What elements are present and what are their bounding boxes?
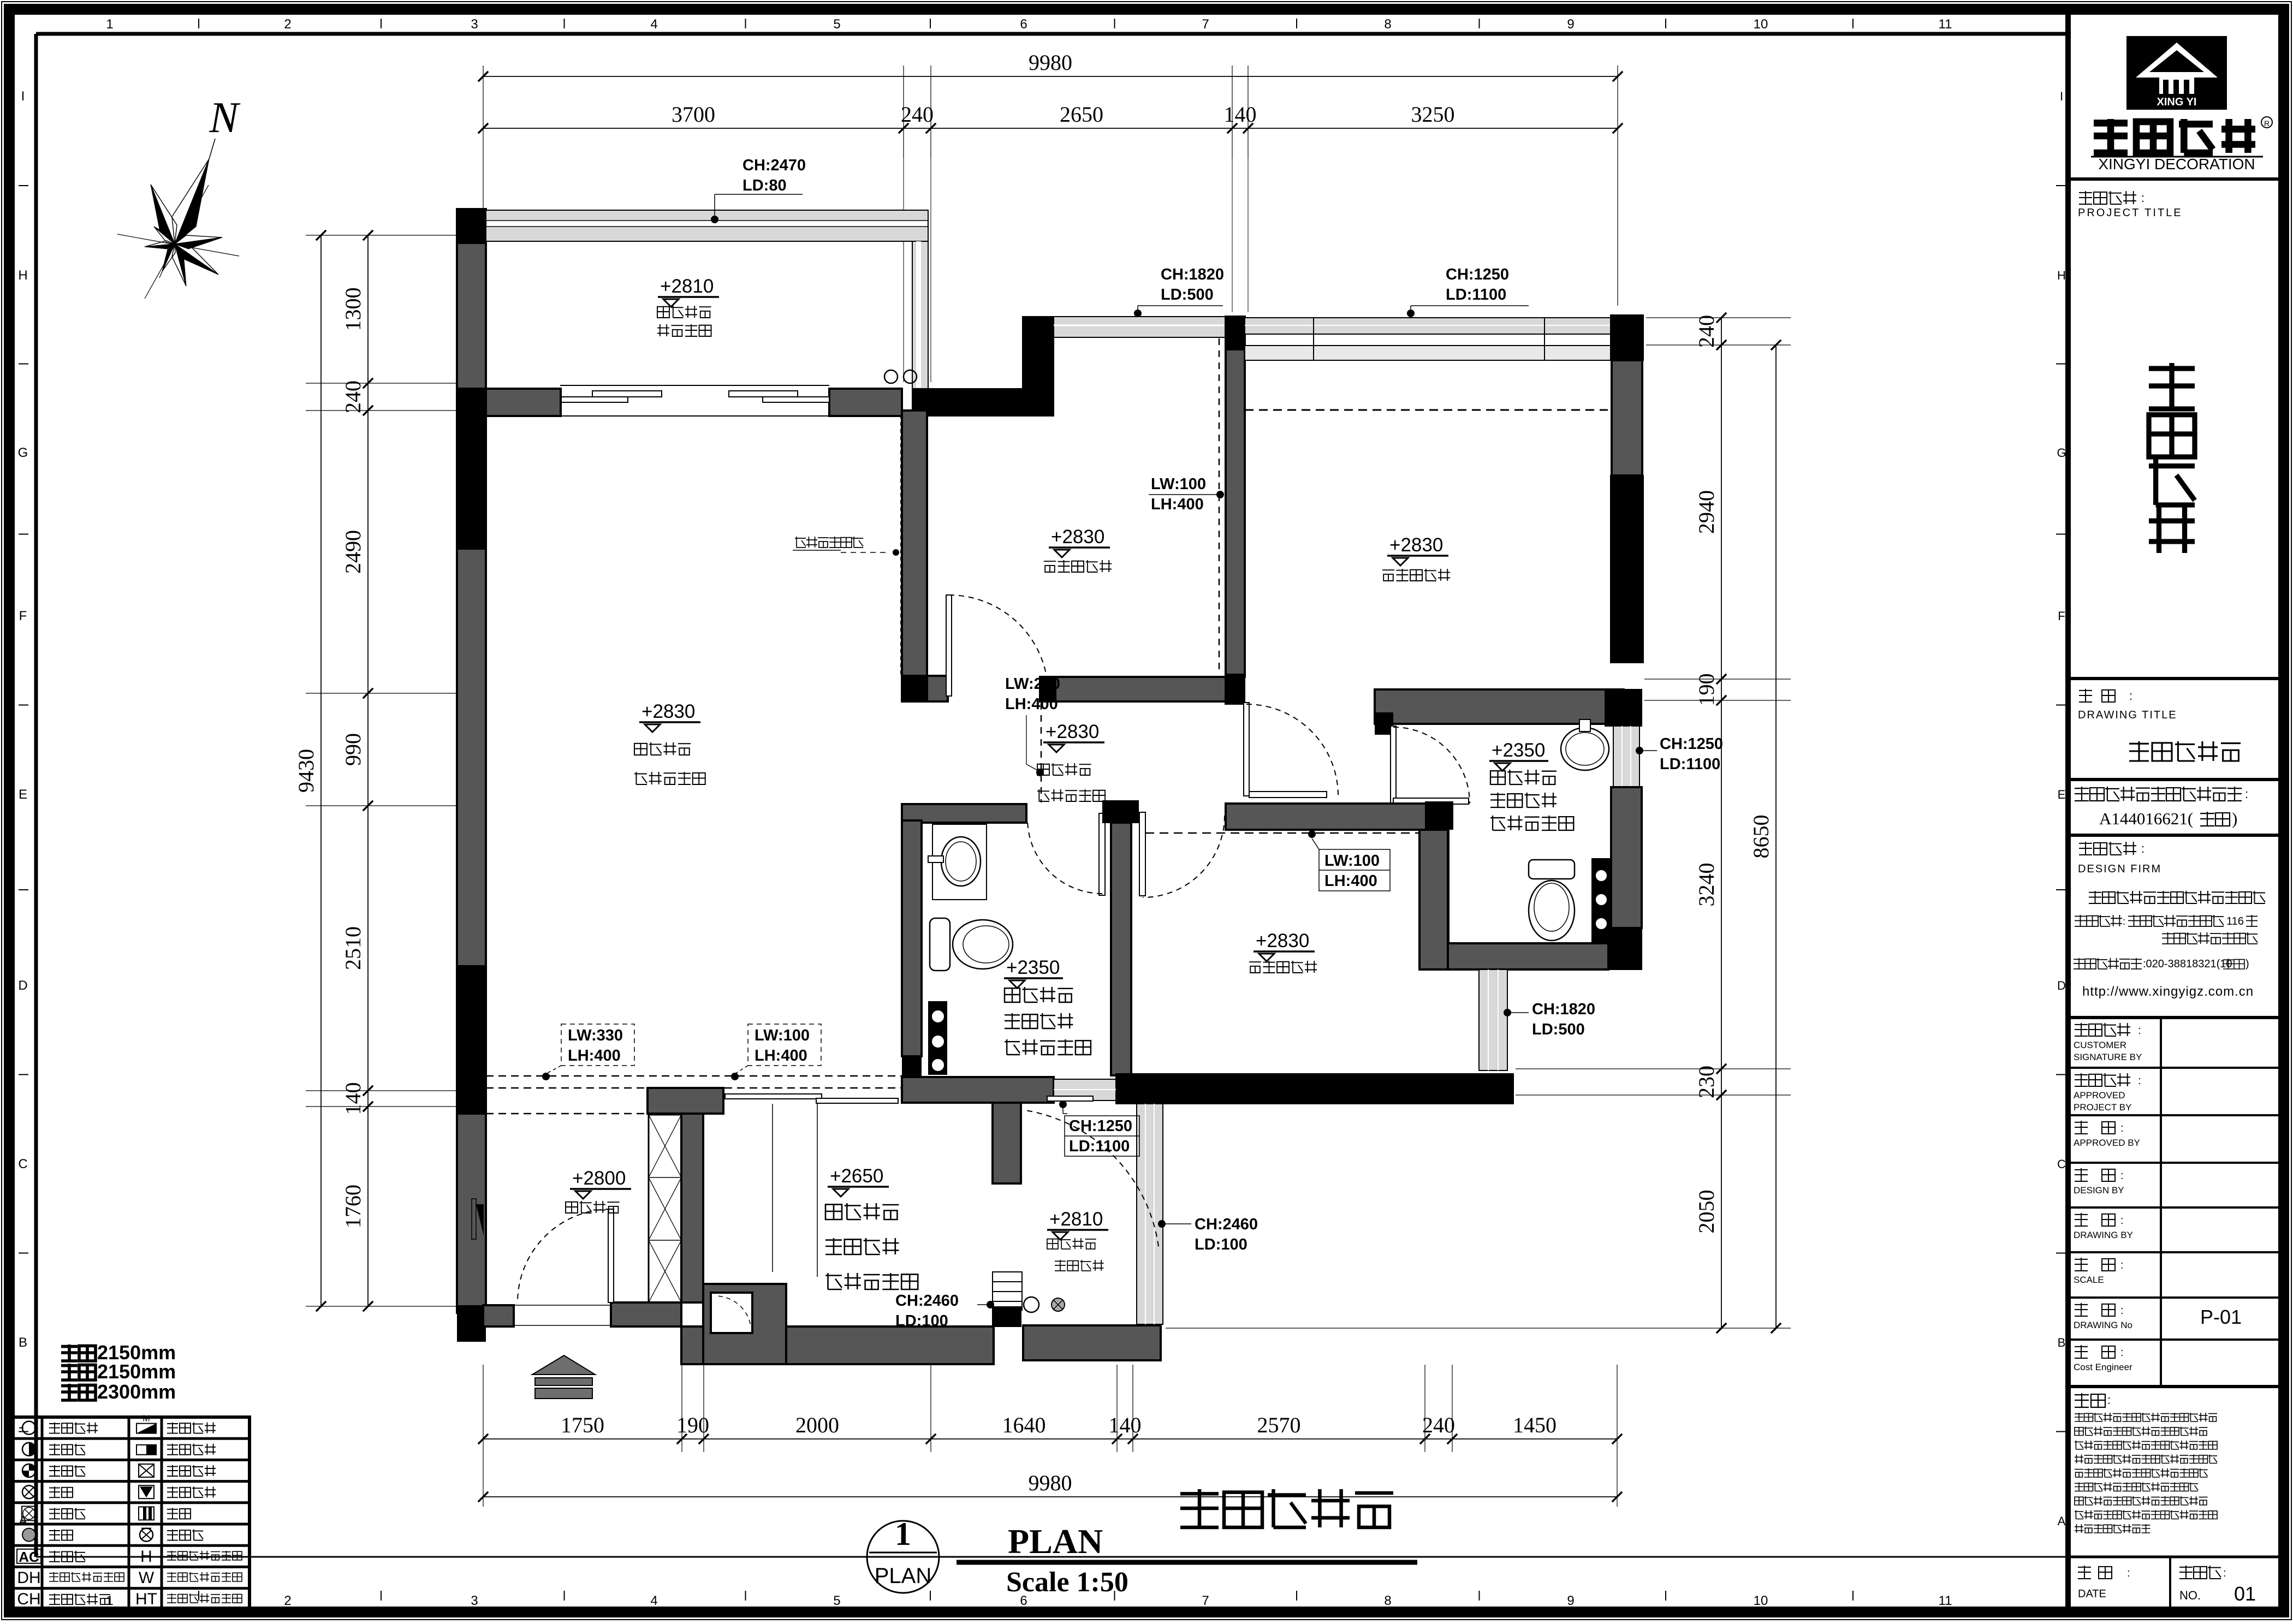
svg-text:+2810: +2810 (660, 276, 714, 297)
svg-text:11: 11 (1939, 17, 1952, 32)
svg-text:LW:330: LW:330 (568, 1027, 623, 1044)
svg-text::: : (2120, 1259, 2124, 1271)
svg-text::: : (2120, 1170, 2124, 1182)
svg-text:DESIGN FIRM: DESIGN FIRM (2078, 863, 2161, 875)
svg-text:9430: 9430 (294, 749, 318, 793)
svg-text:1: 1 (895, 1516, 911, 1552)
svg-text:http://www.xingyigz.com.cn: http://www.xingyigz.com.cn (2082, 984, 2254, 999)
svg-text:7: 7 (1202, 1593, 1209, 1608)
svg-text:HT: HT (135, 1590, 157, 1608)
svg-text:3240: 3240 (1694, 863, 1719, 907)
svg-text:2570: 2570 (1257, 1413, 1301, 1437)
svg-text:10: 10 (1754, 17, 1768, 32)
svg-text:10: 10 (1754, 1593, 1768, 1608)
svg-text:4: 4 (650, 17, 657, 32)
svg-text:LH:400: LH:400 (1005, 695, 1058, 713)
svg-text:H: H (18, 268, 27, 283)
svg-text:1750: 1750 (561, 1413, 604, 1437)
svg-text::: : (2123, 916, 2125, 927)
svg-text:XING YI: XING YI (2157, 96, 2197, 108)
svg-text:PLAN: PLAN (1008, 1522, 1103, 1561)
svg-text:190: 190 (1694, 674, 1719, 706)
svg-text:PROJECT BY: PROJECT BY (2074, 1102, 2131, 1113)
svg-text:LH:400: LH:400 (1151, 496, 1204, 513)
svg-text:LH:400: LH:400 (755, 1047, 807, 1064)
svg-text:H: H (2057, 269, 2066, 282)
svg-text:4: 4 (650, 1593, 657, 1608)
svg-text::: : (2127, 1567, 2130, 1579)
svg-text::: : (2138, 1025, 2141, 1037)
svg-text:LW:100: LW:100 (1324, 852, 1380, 870)
svg-text:190: 190 (676, 1413, 709, 1437)
svg-text:3: 3 (471, 1593, 478, 1608)
svg-text:DRAWING TITLE: DRAWING TITLE (2078, 709, 2177, 721)
svg-text:E: E (2058, 788, 2066, 801)
svg-text:B: B (19, 1335, 27, 1350)
svg-text:5: 5 (833, 17, 840, 32)
svg-text:140: 140 (1109, 1413, 1142, 1437)
svg-text:2: 2 (284, 17, 291, 32)
svg-text:LD:1100: LD:1100 (1069, 1138, 1130, 1155)
svg-text:9980: 9980 (1029, 50, 1072, 75)
svg-text:C: C (2057, 1157, 2066, 1171)
svg-text:I: I (21, 89, 25, 104)
svg-text:2650: 2650 (1060, 102, 1103, 127)
svg-text:R: R (2264, 119, 2270, 128)
svg-text:): ) (2232, 809, 2237, 828)
svg-text:9: 9 (1567, 17, 1574, 32)
svg-text:SCALE: SCALE (2074, 1275, 2104, 1285)
svg-text:LD:500: LD:500 (1161, 286, 1214, 304)
svg-text:990: 990 (341, 733, 365, 766)
svg-text:+2830: +2830 (1045, 721, 1099, 742)
svg-text:1: 1 (106, 1593, 113, 1608)
svg-text::: : (2141, 191, 2145, 205)
svg-text:CH:1250: CH:1250 (1446, 266, 1509, 283)
svg-text:DH: DH (17, 1569, 40, 1587)
svg-text:CH:1250: CH:1250 (1660, 735, 1723, 753)
svg-text:9980: 9980 (1029, 1471, 1072, 1495)
svg-text:CUSTOMER: CUSTOMER (2074, 1040, 2126, 1050)
svg-text:240: 240 (341, 380, 365, 413)
svg-text:N: N (209, 94, 241, 142)
svg-text:W: W (139, 1569, 155, 1587)
svg-text:9: 9 (1567, 1593, 1574, 1608)
svg-text:XINGYI DECORATION: XINGYI DECORATION (2098, 156, 2255, 172)
svg-text::: : (2141, 842, 2145, 855)
svg-text:LW:100: LW:100 (1151, 475, 1206, 493)
svg-text:M: M (142, 1414, 150, 1424)
svg-text:E: E (19, 787, 27, 802)
svg-text:140: 140 (1224, 102, 1257, 127)
svg-text:G: G (18, 445, 28, 460)
svg-text:2: 2 (284, 1593, 291, 1608)
svg-text::: : (2107, 1393, 2111, 1407)
svg-text:01: 01 (2234, 1583, 2256, 1605)
svg-text:6: 6 (1020, 17, 1027, 32)
svg-text:2000: 2000 (795, 1413, 839, 1437)
svg-text:D: D (18, 978, 27, 993)
svg-text:CH:1820: CH:1820 (1532, 1001, 1595, 1018)
svg-text::: : (2223, 1567, 2226, 1579)
svg-text::020-38818321(10: :020-38818321(10 (2143, 958, 2232, 970)
svg-text:A: A (2058, 1514, 2066, 1528)
svg-text::: : (2129, 689, 2132, 703)
svg-text:LD:100: LD:100 (1195, 1236, 1248, 1253)
svg-text:240: 240 (1422, 1413, 1455, 1437)
svg-text:LH:400: LH:400 (1324, 872, 1377, 890)
svg-text:3250: 3250 (1411, 102, 1455, 127)
svg-text:F: F (19, 609, 27, 623)
svg-text:Cost Engineer: Cost Engineer (2074, 1362, 2132, 1372)
svg-text:DESIGN BY: DESIGN BY (2074, 1185, 2124, 1195)
svg-text:2150mm: 2150mm (97, 1360, 176, 1383)
svg-text:+2350: +2350 (1492, 740, 1545, 761)
svg-text:240: 240 (901, 102, 934, 127)
svg-text:LW:100: LW:100 (755, 1027, 810, 1044)
svg-text:11: 11 (1939, 1593, 1952, 1608)
svg-text:1640: 1640 (1002, 1413, 1046, 1437)
svg-text:8650: 8650 (1749, 815, 1773, 859)
svg-text:+2830: +2830 (1051, 526, 1104, 548)
svg-text:240: 240 (1694, 315, 1719, 348)
svg-text:CH:1820: CH:1820 (1161, 266, 1224, 283)
svg-text:APPROVED BY: APPROVED BY (2074, 1138, 2140, 1148)
svg-text:D: D (2057, 979, 2066, 992)
svg-text:+2800: +2800 (572, 1168, 626, 1189)
svg-text:CH:2470: CH:2470 (742, 157, 806, 174)
svg-text::: : (2120, 1122, 2124, 1134)
svg-text:LH:400: LH:400 (568, 1047, 621, 1064)
svg-text:LW:240: LW:240 (1005, 675, 1060, 693)
svg-text:CH:2460: CH:2460 (895, 1292, 959, 1310)
svg-text:SIGNATURE BY: SIGNATURE BY (2074, 1052, 2142, 1062)
svg-text:CH:1250: CH:1250 (1069, 1117, 1132, 1135)
svg-text:LD:500: LD:500 (1532, 1021, 1585, 1038)
svg-text:DRAWING BY: DRAWING BY (2074, 1230, 2133, 1240)
svg-text:C: C (18, 1157, 27, 1171)
svg-text:140: 140 (341, 1082, 365, 1115)
svg-text:8: 8 (1384, 1593, 1391, 1608)
svg-text:LD:80: LD:80 (742, 177, 787, 194)
svg-text:1: 1 (106, 17, 113, 32)
svg-text:1760: 1760 (341, 1185, 365, 1228)
svg-text:2940: 2940 (1694, 490, 1719, 534)
svg-text:I: I (2060, 90, 2063, 103)
svg-text:+2650: +2650 (830, 1165, 883, 1187)
svg-text:116: 116 (2226, 915, 2244, 927)
svg-text:2490: 2490 (341, 530, 365, 574)
svg-text:1300: 1300 (341, 288, 365, 331)
svg-text:7: 7 (1202, 17, 1209, 32)
svg-text:230: 230 (1694, 1066, 1719, 1098)
svg-text:LD:1100: LD:1100 (1660, 756, 1720, 773)
svg-text::: : (2120, 1305, 2124, 1317)
svg-text:PROJECT TITLE: PROJECT TITLE (2078, 207, 2183, 219)
svg-text:+2350: +2350 (1006, 957, 1060, 978)
svg-text:LD:1100: LD:1100 (1446, 286, 1506, 304)
svg-text:P-01: P-01 (2200, 1306, 2242, 1328)
svg-text:3700: 3700 (672, 102, 715, 127)
svg-text:+2810: +2810 (1049, 1209, 1103, 1230)
svg-text::: : (2120, 1215, 2124, 1227)
svg-text:AC: AC (19, 1549, 39, 1565)
svg-text:DATE: DATE (2078, 1588, 2106, 1600)
svg-text:B: B (2058, 1336, 2066, 1349)
svg-text:CH:2460: CH:2460 (1195, 1216, 1258, 1233)
svg-text:Scale 1:50: Scale 1:50 (1006, 1567, 1128, 1598)
svg-text::: : (2138, 1075, 2141, 1087)
svg-text:+2830: +2830 (641, 701, 695, 722)
svg-text:PLAN: PLAN (875, 1564, 932, 1588)
svg-text:G: G (2057, 446, 2066, 460)
svg-text:+2830: +2830 (1256, 930, 1309, 951)
svg-text:2510: 2510 (341, 926, 365, 970)
svg-text:1450: 1450 (1513, 1413, 1557, 1437)
svg-text:H: H (140, 1548, 152, 1566)
svg-text::: : (2120, 1347, 2124, 1359)
svg-text:+2830: +2830 (1389, 534, 1443, 556)
svg-text:LD:100: LD:100 (895, 1312, 948, 1330)
svg-text:DRAWING No: DRAWING No (2074, 1320, 2132, 1330)
svg-text:F: F (2058, 609, 2065, 623)
svg-text:8: 8 (1384, 17, 1391, 32)
svg-text:APPROVED: APPROVED (2074, 1090, 2125, 1100)
svg-text:): ) (2246, 958, 2249, 970)
svg-text:CH: CH (17, 1590, 40, 1608)
svg-text:2050: 2050 (1694, 1190, 1719, 1234)
svg-text:2300mm: 2300mm (97, 1381, 176, 1403)
svg-text:A144016621(: A144016621( (2099, 809, 2193, 828)
svg-text:NO.: NO. (2179, 1589, 2201, 1602)
svg-text:5: 5 (833, 1593, 840, 1608)
svg-text:3: 3 (471, 17, 478, 32)
svg-text::: : (2245, 787, 2248, 801)
